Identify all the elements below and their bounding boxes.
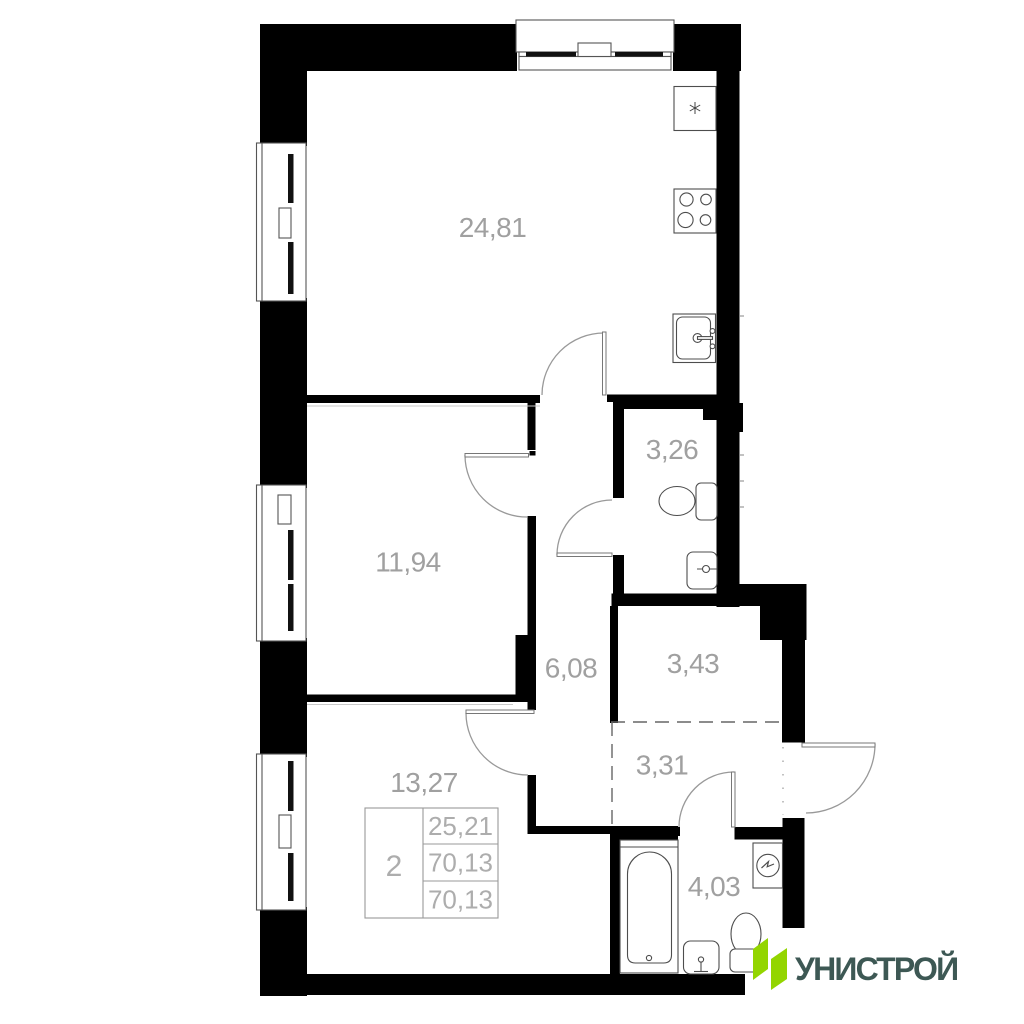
svg-text:13,27: 13,27: [390, 767, 458, 798]
svg-text:4,03: 4,03: [688, 871, 741, 902]
svg-text:70,13: 70,13: [428, 885, 493, 915]
svg-text:25,21: 25,21: [428, 811, 493, 841]
svg-text:24,81: 24,81: [459, 212, 527, 243]
svg-text:3,31: 3,31: [636, 750, 689, 781]
svg-text:6,08: 6,08: [545, 653, 598, 684]
svg-text:3,26: 3,26: [646, 434, 699, 465]
svg-text:11,94: 11,94: [375, 547, 441, 578]
svg-text:УНИСТРОЙ: УНИСТРОЙ: [795, 951, 957, 987]
svg-text:3,43: 3,43: [667, 648, 720, 679]
svg-text:70,13: 70,13: [428, 848, 493, 878]
svg-text:2: 2: [386, 850, 403, 883]
